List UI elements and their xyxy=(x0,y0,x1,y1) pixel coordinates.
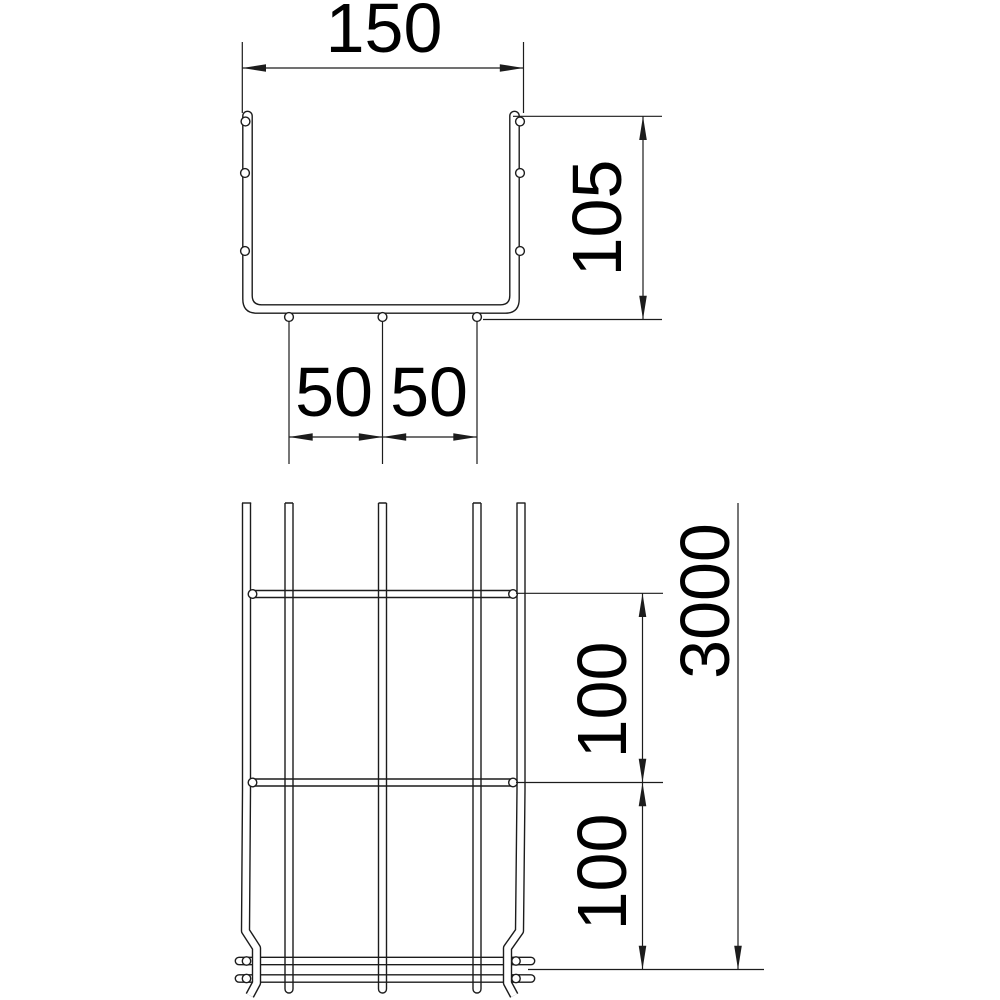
rail-stub-node xyxy=(512,974,520,982)
bottom-rail xyxy=(235,975,534,982)
mesh-cable-tray-dimension-drawing: 150 105 50 50 xyxy=(0,0,1000,1000)
bottom-wire-node xyxy=(285,313,294,322)
dimension-rung-spacing-1: 100 xyxy=(516,593,663,782)
side-view xyxy=(235,503,534,996)
side-wire-node xyxy=(516,169,525,178)
side-wire-node xyxy=(516,117,525,126)
left-wall-top-cap xyxy=(243,111,252,116)
arrowhead-left xyxy=(289,433,313,441)
rung-end-node xyxy=(509,590,518,599)
right-wall-top-cap xyxy=(510,111,519,116)
mesh-wire xyxy=(285,503,293,993)
mesh-wire xyxy=(379,503,387,993)
arrowhead-right xyxy=(359,433,383,441)
cross-section-view xyxy=(241,111,525,321)
spacing-dimension-label-1: 50 xyxy=(295,353,373,431)
rung-end-node xyxy=(248,590,257,599)
arrowhead-down xyxy=(639,946,647,970)
arrowhead-up xyxy=(639,783,647,807)
right-edge-wire-core xyxy=(508,503,522,996)
rail-stub-node xyxy=(242,974,250,982)
side-wire-node xyxy=(241,117,250,126)
side-wire-node xyxy=(241,247,250,256)
bottom-wire-node xyxy=(473,313,482,322)
dimension-width: 150 xyxy=(242,0,523,113)
rail-stub-node xyxy=(242,957,250,965)
arrowhead-right xyxy=(453,433,477,441)
dimension-bottom-spacing: 50 50 xyxy=(289,322,477,465)
arrowhead-up xyxy=(639,116,647,140)
arrowhead-down xyxy=(734,946,742,970)
height-dimension-label: 105 xyxy=(558,160,636,277)
length-dimension-label: 3000 xyxy=(666,523,744,679)
arrowhead-down xyxy=(639,296,647,320)
spacing-dimension-label-2: 50 xyxy=(390,353,468,431)
arrowhead-right xyxy=(500,64,524,72)
rung-end-node xyxy=(248,778,257,787)
arrowhead-up xyxy=(639,593,647,617)
bottom-wire-node xyxy=(378,313,387,322)
dimension-rung-spacing-2: 100 xyxy=(528,783,764,970)
technical-drawing-page: 150 105 50 50 xyxy=(0,0,1000,1000)
arrowhead-down xyxy=(639,759,647,783)
rung-spacing-label-1: 100 xyxy=(563,642,641,759)
mesh-wire xyxy=(473,503,481,993)
rung-spacing-label-2: 100 xyxy=(563,814,641,931)
tray-profile-outer-line xyxy=(243,116,519,313)
bottom-rail xyxy=(235,957,534,964)
tray-profile-inner-line xyxy=(252,116,510,305)
arrowhead-left xyxy=(242,64,266,72)
rail-stub-node xyxy=(512,957,520,965)
dimension-length: 3000 xyxy=(666,503,744,970)
side-wire-node xyxy=(516,247,525,256)
width-dimension-label: 150 xyxy=(326,0,443,67)
side-wire-node xyxy=(241,169,250,178)
arrowhead-left xyxy=(383,433,407,441)
